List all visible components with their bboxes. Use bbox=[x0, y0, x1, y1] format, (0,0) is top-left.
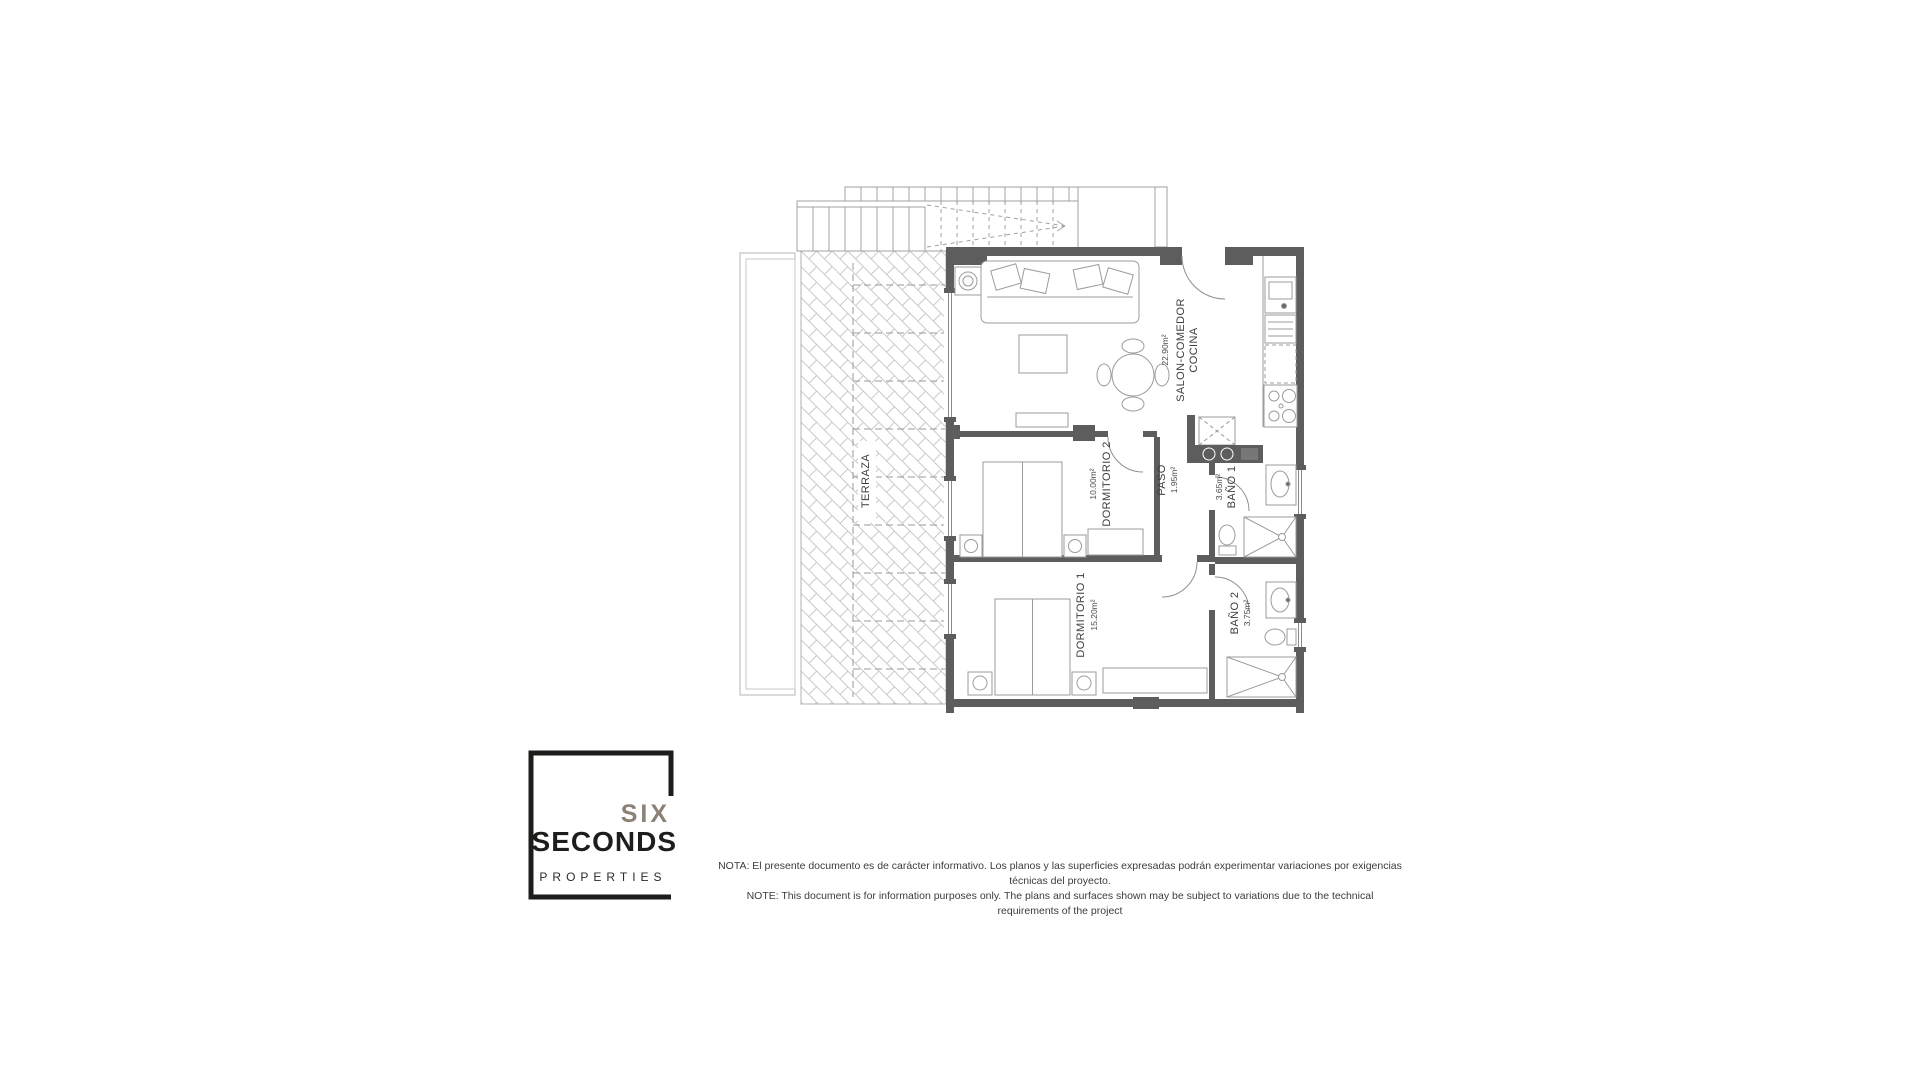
paso-label: PASO bbox=[1156, 464, 1168, 495]
logo-word-seconds: SECONDS bbox=[532, 826, 677, 858]
terraza-label: TERRAZA bbox=[860, 454, 872, 508]
stairs-above-dashed bbox=[927, 201, 1065, 251]
floor-plan: 22.90m² SALON-COMEDOR COCINA 10.00m² DOR… bbox=[735, 185, 1315, 715]
furniture bbox=[955, 256, 1297, 697]
sideboard bbox=[1016, 413, 1068, 427]
logo-word-six: SIX bbox=[621, 800, 670, 829]
coffee-table bbox=[1019, 335, 1067, 373]
disclaimer: NOTA: El presente documento es de caráct… bbox=[715, 859, 1405, 919]
window-dormitorio2 bbox=[944, 476, 956, 541]
bench bbox=[1103, 668, 1207, 693]
bano2-area-label: 3.75m² bbox=[1242, 600, 1252, 627]
salon-label-line2: COCINA bbox=[1188, 327, 1200, 372]
dormitorio1-door-swing bbox=[1162, 562, 1197, 597]
window-salon bbox=[944, 288, 956, 422]
company-logo: SIX SECONDS PROPERTIES bbox=[528, 750, 674, 900]
bano1-label: BAÑO 1 bbox=[1225, 466, 1238, 509]
salon-label: SALON-COMEDOR bbox=[1175, 298, 1187, 402]
toilet bbox=[1219, 525, 1235, 545]
paso-area-label: 1.95m² bbox=[1169, 467, 1179, 494]
entrance-door-swing bbox=[1182, 256, 1225, 299]
side-table bbox=[955, 267, 981, 295]
floor-plan-drawing: 22.90m² SALON-COMEDOR COCINA 10.00m² DOR… bbox=[735, 185, 1315, 715]
dining-table bbox=[1097, 339, 1169, 411]
stairs bbox=[797, 187, 1167, 251]
bano2-label: BAÑO 2 bbox=[1228, 592, 1241, 635]
bed-dormitorio2 bbox=[960, 462, 1143, 557]
utility-counter bbox=[1194, 445, 1263, 463]
disclaimer-line-es: NOTA: El presente documento es de caráct… bbox=[715, 859, 1405, 889]
dormitorio2-area-label: 10.00m² bbox=[1088, 468, 1098, 499]
salon-area-label: 22.90m² bbox=[1160, 334, 1170, 365]
disclaimer-line-en: NOTE: This document is for information p… bbox=[715, 889, 1405, 919]
planter-border bbox=[740, 253, 795, 695]
page: 22.90m² SALON-COMEDOR COCINA 10.00m² DOR… bbox=[0, 0, 1920, 1080]
sofa bbox=[981, 261, 1139, 323]
kitchen-counter bbox=[1263, 256, 1297, 427]
shower bbox=[1244, 517, 1296, 557]
bed-dormitorio1 bbox=[968, 599, 1207, 695]
cooktop bbox=[1264, 385, 1297, 427]
shower bbox=[1227, 657, 1296, 697]
logo-word-properties: PROPERTIES bbox=[534, 870, 672, 884]
fridge bbox=[1199, 417, 1235, 445]
window-dormitorio1 bbox=[944, 579, 956, 639]
bano1-area-label: 3.65m² bbox=[1214, 474, 1224, 501]
dormitorio1-label: DORMITORIO 1 bbox=[1075, 572, 1087, 657]
dresser bbox=[1088, 529, 1143, 555]
toilet bbox=[1265, 629, 1285, 645]
dormitorio1-area-label: 15.20m² bbox=[1089, 599, 1099, 630]
dormitorio2-door-swing bbox=[1108, 437, 1143, 472]
dormitorio2-label: DORMITORIO 2 bbox=[1101, 441, 1113, 526]
terrace-hatch bbox=[801, 251, 946, 704]
